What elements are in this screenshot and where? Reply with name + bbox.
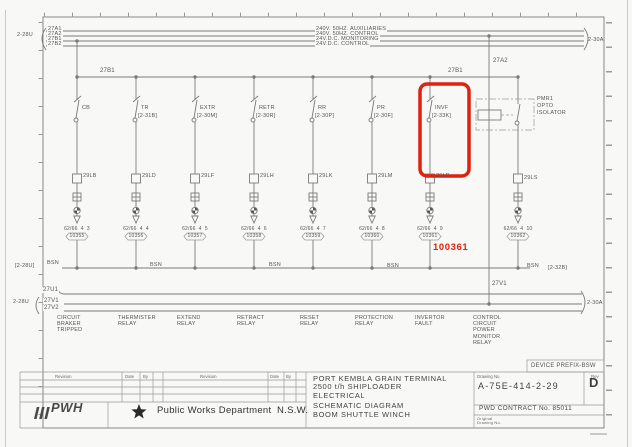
by-header: By: [143, 374, 148, 380]
wire-number: 10362: [496, 233, 540, 239]
device-prefix-note: DEVICE PREFIX-BSW: [531, 363, 596, 369]
drawing-no-label: Drawing No.: [477, 374, 501, 380]
org-name: Public Works Department: [157, 408, 271, 414]
device-label-rr: RR: [318, 105, 326, 111]
bsn-label: BSN: [527, 263, 539, 269]
device-label-invf: INVF: [435, 105, 448, 111]
schematic-sheet: 2-28U 27A1 27A2 27B1 27B2 240V. 50HZ. AU…: [0, 0, 632, 447]
wire-number: 10359: [291, 233, 335, 239]
device-label-retr: RETR: [259, 105, 275, 111]
bottom-left-ref: 2-28U: [13, 299, 29, 305]
rail-label-right: 27B1: [448, 68, 463, 74]
device-label-cb: CB: [82, 105, 90, 111]
bsn-label: BSN: [47, 260, 59, 266]
coil-label-29lp: 29LP: [436, 173, 450, 179]
function-label: CIRCUIT BRAKER TRIPPED: [57, 315, 82, 334]
pmr1-opto-box: [476, 99, 534, 130]
highlight-wire-annotation: 100361: [433, 245, 468, 251]
bus-id-27b2: 27B2: [47, 41, 63, 47]
project-title-line: BOOM SHUTTLE WINCH: [313, 412, 410, 418]
original-drawing-label: Original Drawing No.: [477, 417, 501, 426]
terminal-label: 62/66 4 5: [173, 226, 217, 232]
device-label-pmr1: PMR1 OPTO ISOLATOR: [537, 96, 566, 117]
bus-id-27v2: 27V2: [43, 305, 60, 311]
rail-label-left: 27B1: [100, 68, 115, 74]
bus-id-27v1: 27V1: [43, 298, 60, 304]
device-ref-pr: [2-30F]: [374, 113, 393, 119]
rev-value: D: [589, 380, 599, 386]
org-region: N.S.W.: [277, 408, 308, 414]
terminal-label: 62/66 4 6: [232, 226, 276, 232]
coil-label-29lb: 29LB: [83, 173, 97, 179]
function-label: THERMISTER RELAY: [118, 315, 156, 327]
drawing-number: A-75E-414-2-29: [478, 383, 559, 389]
tap-label-27a2: 27A2: [493, 58, 508, 64]
coil-label-29ld: 29LD: [142, 173, 156, 179]
waratah-icon: [131, 404, 146, 419]
function-label: INVERTOR FAULT: [415, 315, 445, 327]
bsn-bus: [62, 266, 530, 269]
pmr1-branch: [507, 77, 529, 268]
red-highlight-box: [420, 84, 469, 176]
branch-symbols: [66, 77, 529, 268]
tap-label-27v1: 27V1: [492, 281, 507, 287]
bus-desc-control-24: 24V.D.C. CONTROL: [315, 41, 370, 47]
project-title-line: 2500 t/h SHIPLOADER: [313, 384, 402, 390]
device-label-pr: PR: [377, 105, 385, 111]
device-ref-extr: [2-30M]: [197, 113, 217, 119]
terminal-label: 62/66 4 9: [408, 226, 452, 232]
revision-header: Revision: [200, 374, 216, 380]
pwh-logo-icon: [34, 407, 50, 419]
top-left-ref: 2-28U: [17, 32, 33, 38]
terminal-label: 62/66 4 8: [350, 226, 394, 232]
device-ref-invf: [2-33K]: [432, 113, 451, 119]
function-label: CONTROL CIRCUIT POWER MONITOR RELAY: [473, 315, 501, 346]
coil-label-29lh: 29LH: [260, 173, 274, 179]
coil-label-29lf: 29LF: [201, 173, 214, 179]
function-label: PROTECTION RELAY: [355, 315, 393, 327]
function-label: RESET RELAY: [300, 315, 319, 327]
function-label: RETRACT RELAY: [237, 315, 264, 327]
terminal-label: 62/66 4 10: [496, 226, 540, 232]
opto-coil: [478, 110, 501, 120]
top-right-ref: 2-30A: [588, 37, 604, 43]
bsn-right-ref: [2-32B]: [548, 265, 567, 271]
device-ref-rr: [2-30P]: [315, 113, 334, 119]
device-label-extr: EXTR: [200, 105, 215, 111]
wire-number: 10358: [232, 233, 276, 239]
by-header: By: [286, 374, 291, 380]
left-bottom-bracket: [36, 297, 39, 314]
wire-number: 10356: [114, 233, 158, 239]
device-label-tr: TR: [141, 105, 149, 111]
pwh-logo-text: PWH: [51, 405, 83, 411]
bottom-bus-lines: [36, 289, 585, 314]
coil-label-29lk: 29LK: [319, 173, 333, 179]
terminal-label: 62/66 4 4: [114, 226, 158, 232]
bottom-right-ref: 2-30A: [587, 300, 603, 306]
tap-27a2-27v1: [487, 34, 490, 305]
date-header: Date: [270, 374, 279, 380]
bsn-label: BSN: [387, 263, 399, 269]
wire-number: 10355: [55, 233, 99, 239]
bsn-label: BSN: [150, 262, 162, 268]
bus-id-27u1: 27U1: [42, 287, 59, 293]
wire-number: 10357: [173, 233, 217, 239]
bsn-label: BSN: [269, 262, 281, 268]
terminal-label: 62/66 4 3: [55, 226, 99, 232]
coil-label-29lm: 29LM: [378, 173, 393, 179]
revision-header: Revision: [55, 374, 71, 380]
project-title-line: PORT KEMBLA GRAIN TERMINAL: [313, 376, 447, 382]
device-ref-retr: [2-30R]: [256, 113, 275, 119]
contract-number: PWD CONTRACT No. 85011: [479, 406, 572, 412]
function-label: EXTEND RELAY: [177, 315, 201, 327]
terminal-label: 62/66 4 7: [291, 226, 335, 232]
device-ref-tr: [2-31B]: [138, 113, 157, 119]
project-title-line: ELECTRICAL: [313, 393, 365, 399]
wire-number: 10361: [408, 233, 452, 239]
date-header: Date: [125, 374, 134, 380]
bsn-left-ref: [2-28U]: [15, 263, 34, 269]
wire-number: 10360: [350, 233, 394, 239]
project-title-line: SCHEMATIC DIAGRAM: [313, 403, 404, 409]
coil-label-29ls: 29LS: [524, 175, 538, 181]
